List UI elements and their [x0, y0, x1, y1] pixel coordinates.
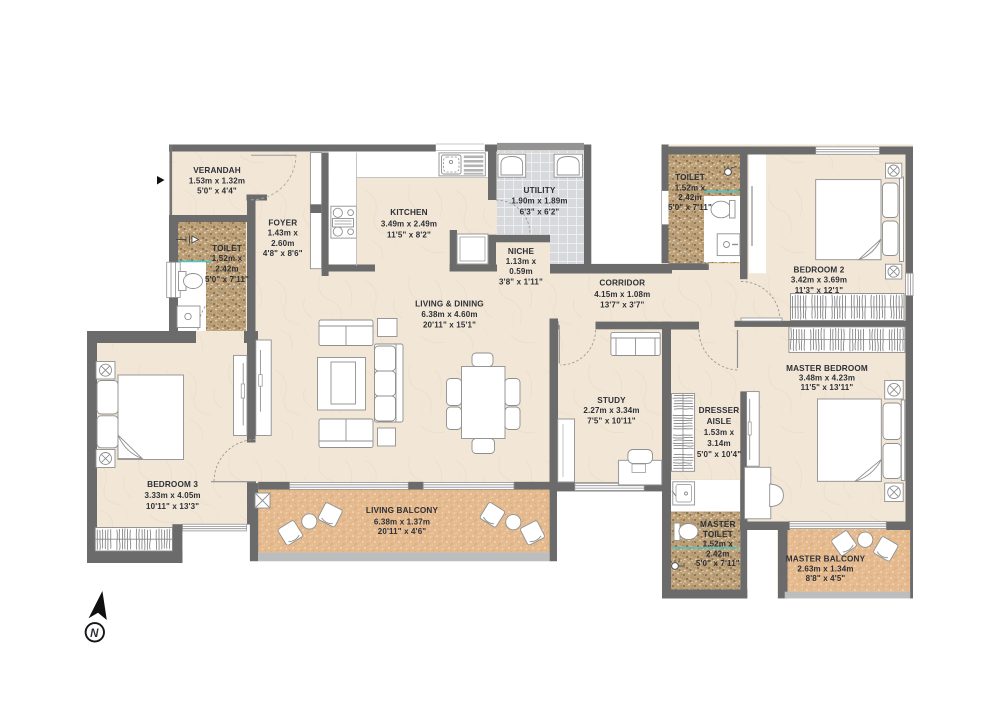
svg-text:STUDY: STUDY — [597, 396, 626, 405]
svg-text:MASTER BEDROOM: MASTER BEDROOM — [786, 364, 868, 373]
svg-text:3.33m x 4.05m: 3.33m x 4.05m — [144, 491, 200, 500]
svg-text:TOILET: TOILET — [212, 244, 242, 253]
svg-text:MASTER BALCONY: MASTER BALCONY — [786, 554, 866, 563]
svg-text:2.60m: 2.60m — [271, 239, 294, 248]
svg-text:4.15m x 1.08m: 4.15m x 1.08m — [594, 290, 650, 299]
svg-text:5'0" x 4'4": 5'0" x 4'4" — [197, 186, 237, 195]
svg-text:DRESSER: DRESSER — [699, 406, 740, 415]
svg-text:11'3" x 12'1": 11'3" x 12'1" — [795, 286, 844, 295]
svg-text:AISLE: AISLE — [707, 417, 732, 426]
svg-text:1.52m x: 1.52m x — [675, 183, 706, 192]
svg-text:4'8" x 8'6": 4'8" x 8'6" — [263, 249, 303, 258]
svg-text:13'7" x 3'7": 13'7" x 3'7" — [600, 301, 644, 310]
svg-text:UTILITY: UTILITY — [524, 186, 556, 195]
svg-text:6.38m x 1.37m: 6.38m x 1.37m — [374, 517, 430, 526]
svg-text:BEDROOM 3: BEDROOM 3 — [147, 480, 198, 489]
svg-text:1.13m x: 1.13m x — [506, 257, 537, 266]
svg-text:MASTER: MASTER — [700, 520, 735, 529]
svg-text:0.59m: 0.59m — [509, 267, 532, 276]
svg-text:10'11" x 13'3": 10'11" x 13'3" — [146, 502, 199, 511]
svg-text:CORRIDOR: CORRIDOR — [599, 279, 645, 288]
svg-text:NICHE: NICHE — [508, 247, 535, 256]
svg-text:KITCHEN: KITCHEN — [390, 208, 427, 217]
svg-text:3.48m x 4.23m: 3.48m x 4.23m — [799, 373, 855, 382]
svg-text:FOYER: FOYER — [268, 218, 297, 227]
svg-text:2.42m: 2.42m — [706, 549, 729, 558]
svg-text:2.42m: 2.42m — [678, 193, 701, 202]
svg-text:3.42m x 3.69m: 3.42m x 3.69m — [791, 276, 847, 285]
svg-text:2.63m x 1.34m: 2.63m x 1.34m — [797, 565, 853, 574]
svg-text:5'0" x 7'11": 5'0" x 7'11" — [205, 275, 249, 284]
svg-text:1.52m x: 1.52m x — [212, 254, 243, 263]
svg-text:11'5" x 8'2": 11'5" x 8'2" — [387, 230, 431, 239]
svg-text:5'0" x 7'11": 5'0" x 7'11" — [668, 203, 712, 212]
svg-text:TOILET: TOILET — [675, 173, 705, 182]
svg-text:8'8" x 4'5": 8'8" x 4'5" — [806, 574, 846, 583]
svg-text:6.38m x 4.60m: 6.38m x 4.60m — [421, 310, 477, 319]
svg-text:5'0" x 10'4": 5'0" x 10'4" — [697, 450, 741, 459]
svg-text:1.53m x: 1.53m x — [704, 428, 735, 437]
svg-text:1.52m x: 1.52m x — [703, 540, 734, 549]
svg-text:VERANDAH: VERANDAH — [193, 166, 241, 175]
svg-text:1.90m x 1.89m: 1.90m x 1.89m — [511, 197, 567, 206]
svg-text:5'0" x 7'11": 5'0" x 7'11" — [696, 559, 740, 568]
svg-text:3.14m: 3.14m — [707, 439, 730, 448]
svg-text:20'11" x 15'1": 20'11" x 15'1" — [423, 320, 476, 329]
svg-text:2.42m: 2.42m — [215, 265, 238, 274]
svg-text:6'3" x 6'2": 6'3" x 6'2" — [520, 207, 560, 216]
svg-text:LIVING BALCONY: LIVING BALCONY — [366, 506, 439, 515]
svg-text:2.27m x 3.34m: 2.27m x 3.34m — [583, 406, 639, 415]
svg-text:LIVING & DINING: LIVING & DINING — [415, 299, 484, 308]
svg-text:TOILET: TOILET — [703, 530, 733, 539]
svg-text:3.49m x 2.49m: 3.49m x 2.49m — [381, 219, 437, 228]
svg-text:1.53m x 1.32m: 1.53m x 1.32m — [189, 176, 245, 185]
svg-text:3'8" x 1'11": 3'8" x 1'11" — [499, 278, 543, 287]
svg-text:11'5" x 13'11": 11'5" x 13'11" — [801, 383, 854, 392]
svg-text:N: N — [90, 628, 99, 640]
svg-text:20'11" x 4'6": 20'11" x 4'6" — [378, 527, 427, 536]
svg-text:1.43m x: 1.43m x — [268, 229, 299, 238]
svg-text:BEDROOM 2: BEDROOM 2 — [794, 265, 845, 274]
svg-text:7'5" x 10'11": 7'5" x 10'11" — [587, 416, 636, 425]
